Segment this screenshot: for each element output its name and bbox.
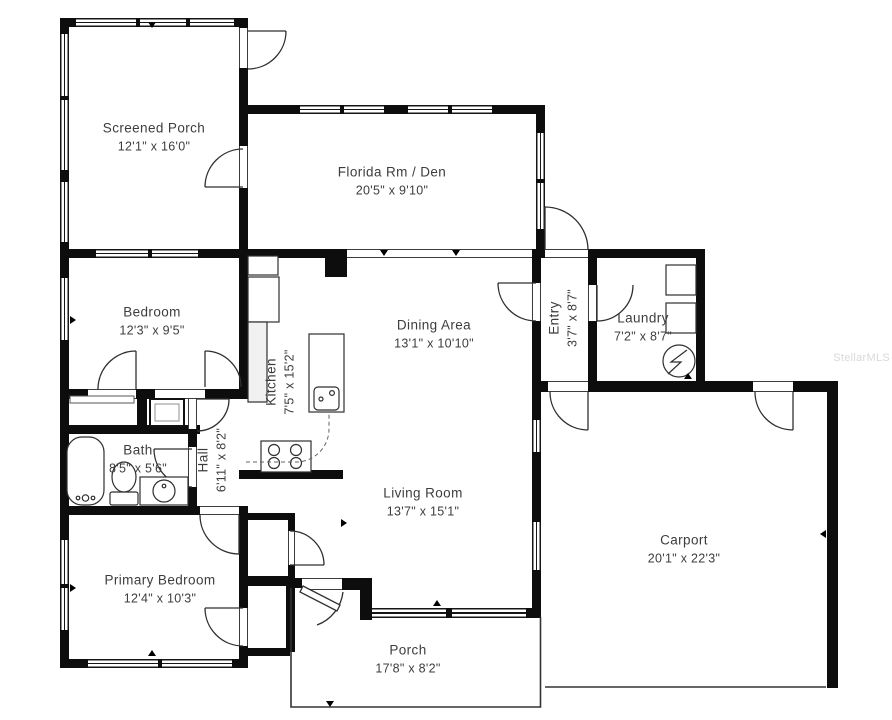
floor-plan: Screened Porch 12'1" x 16'0" Florida Rm …	[0, 0, 892, 720]
window	[60, 540, 69, 584]
kitchen-sink-icon	[314, 387, 339, 410]
window	[344, 105, 384, 114]
room-name: Carport	[648, 533, 720, 548]
door-opening	[288, 531, 295, 565]
window	[536, 183, 545, 229]
linen-closet-icon	[150, 399, 184, 426]
room-dims: 20'5" x 9'10"	[338, 184, 446, 198]
door-opening	[545, 249, 588, 258]
room-dims: 6'11" x 8'2"	[215, 428, 229, 492]
door-opening	[588, 285, 597, 321]
window	[152, 249, 198, 258]
room-label-florida-room: Florida Rm / Den 20'5" x 9'10"	[338, 165, 446, 198]
room-label-bath: Bath 8'5" x 5'6"	[109, 443, 167, 476]
room-name: Kitchen	[264, 349, 279, 414]
room-label-entry: Entry 3'7" x 8'7"	[547, 289, 580, 347]
wall-stub	[325, 249, 347, 277]
window	[536, 133, 545, 179]
room-label-living-room: Living Room 13'7" x 15'1"	[383, 486, 462, 519]
bathroom-vanity-icon	[140, 477, 188, 505]
window	[60, 34, 69, 96]
room-label-screened-porch: Screened Porch 12'1" x 16'0"	[103, 121, 205, 154]
window	[532, 420, 541, 452]
tub-drain-icon	[82, 495, 88, 501]
wall-segment	[239, 249, 248, 399]
window	[408, 105, 448, 114]
window	[452, 608, 526, 618]
door-opening	[239, 608, 248, 646]
door-arc-screened-porch-exterior	[248, 31, 286, 69]
room-name: Porch	[375, 643, 440, 658]
window	[60, 100, 69, 170]
wall-segment	[239, 470, 343, 479]
stove-icon	[261, 441, 311, 472]
door-opening	[753, 381, 793, 392]
window	[88, 659, 158, 668]
room-opening-sill	[347, 249, 532, 258]
room-dims: 12'3" x 9'5"	[119, 324, 184, 338]
room-dims: 7'5" x 15'2"	[283, 349, 297, 414]
door-opening	[532, 283, 541, 321]
door-opening	[548, 381, 588, 392]
window	[190, 18, 234, 27]
toilet-tank-icon	[110, 492, 138, 505]
room-label-carport: Carport 20'1" x 22'3"	[648, 533, 720, 566]
door-arc-hall-closet	[197, 399, 229, 431]
door-arc-entry-to-dining	[498, 283, 536, 321]
room-name: Screened Porch	[103, 121, 205, 136]
sink-icon	[153, 480, 175, 502]
washer-icon	[666, 265, 696, 295]
room-name: Bedroom	[119, 305, 184, 320]
wall-segment	[827, 381, 838, 688]
kitchen-island-icon	[309, 334, 344, 412]
room-dims: 17'8" x 8'2"	[375, 662, 440, 676]
closet-wall	[248, 648, 290, 656]
room-label-dining-area: Dining Area 13'1" x 10'10"	[394, 318, 474, 351]
door-arc-porch	[300, 586, 343, 625]
room-name: Dining Area	[394, 318, 474, 333]
room-name: Bath	[109, 443, 167, 458]
door-arc-entry-to-carport	[550, 392, 588, 430]
door-arc-front-entry	[545, 207, 588, 250]
room-dims: 12'1" x 16'0"	[103, 140, 205, 154]
wall-segment	[60, 425, 200, 434]
wall-segment	[137, 399, 147, 426]
door-arc-hall-closet-front	[290, 531, 324, 565]
room-label-laundry: Laundry 7'2" x 8'7"	[614, 311, 672, 344]
stellar-mls-watermark: StellarMLS	[833, 352, 890, 364]
room-name: Entry	[547, 289, 562, 347]
closet-wall	[248, 576, 288, 586]
room-dims: 8'5" x 5'6"	[109, 462, 167, 476]
window	[96, 249, 148, 258]
wall-segment	[243, 249, 333, 258]
room-label-bedroom: Bedroom 12'3" x 9'5"	[119, 305, 184, 338]
window	[452, 105, 492, 114]
door-opening	[155, 389, 205, 399]
wall-segment	[536, 105, 545, 258]
wall-segment	[243, 105, 545, 114]
door-opening	[239, 146, 248, 188]
kitchen-counter-icon	[248, 256, 278, 275]
door-arc-bedroom-closet	[98, 351, 136, 389]
window	[60, 278, 69, 340]
room-label-kitchen: Kitchen 7'5" x 15'2"	[264, 349, 297, 414]
door-arc-florida-to-porch	[205, 149, 243, 187]
room-dims: 13'7" x 15'1"	[383, 505, 462, 519]
room-dims: 7'2" x 8'7"	[614, 330, 672, 344]
door-opening	[302, 578, 342, 590]
refrigerator-icon	[248, 277, 279, 322]
closet-wall	[286, 586, 295, 652]
wall-segment	[696, 249, 705, 392]
door-opening	[239, 28, 248, 68]
wall-segment	[288, 578, 302, 588]
room-dims: 20'1" x 22'3"	[648, 552, 720, 566]
window	[162, 659, 232, 668]
room-name: Laundry	[614, 311, 672, 326]
room-label-hall: Hall 6'11" x 8'2"	[196, 428, 229, 492]
door-opening	[188, 399, 197, 429]
dashed-counter-line	[246, 412, 329, 462]
door-opening	[88, 389, 136, 399]
room-name: Primary Bedroom	[104, 573, 215, 588]
room-label-primary-bedroom: Primary Bedroom 12'4" x 10'3"	[104, 573, 215, 606]
water-heater-icon	[663, 345, 695, 377]
room-dims: 12'4" x 10'3"	[104, 592, 215, 606]
room-dims: 13'1" x 10'10"	[394, 337, 474, 351]
door-opening	[200, 506, 239, 515]
door-arc-primary-closet	[205, 608, 243, 646]
door-arc-carport-rear	[755, 392, 793, 430]
window	[140, 18, 186, 27]
window	[372, 608, 446, 618]
window	[60, 588, 69, 630]
window	[76, 18, 136, 27]
bathtub-icon	[67, 437, 104, 505]
water-heater-coil-icon	[668, 350, 687, 374]
door-arc-primary-bedroom	[200, 515, 239, 554]
window	[532, 522, 541, 570]
room-name: Hall	[196, 428, 211, 492]
room-name: Living Room	[383, 486, 462, 501]
room-label-porch: Porch 17'8" x 8'2"	[375, 643, 440, 676]
door-arc-bedroom-entry	[205, 351, 241, 387]
room-name: Florida Rm / Den	[338, 165, 446, 180]
window	[300, 105, 340, 114]
wall-segment	[597, 249, 705, 258]
room-dims: 3'7" x 8'7"	[566, 289, 580, 347]
window	[60, 182, 69, 242]
